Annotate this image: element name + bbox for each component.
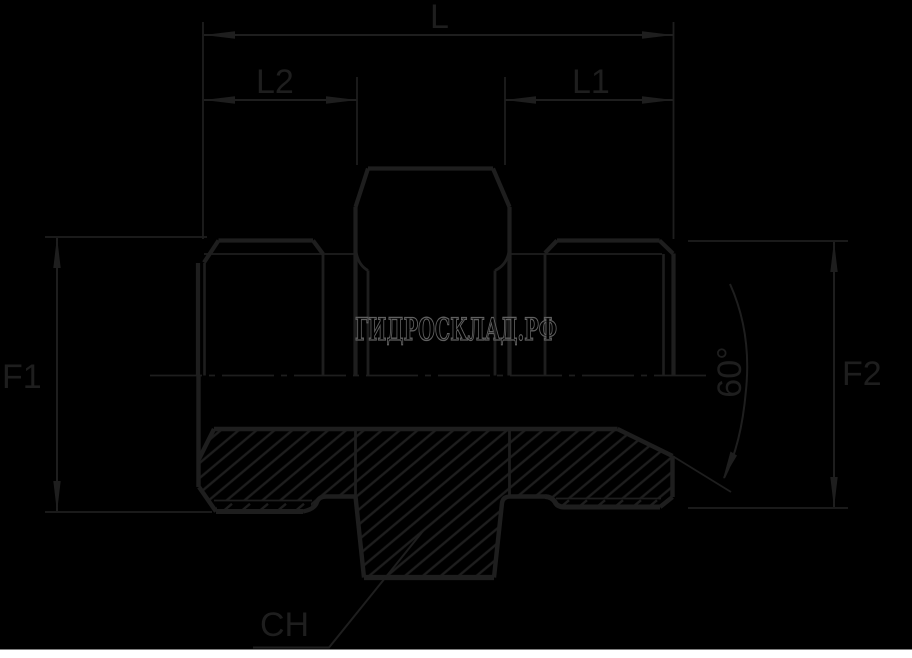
watermark: ГИДРОСКЛАД.РФ	[355, 312, 557, 348]
dimension-label-L: L	[430, 0, 449, 36]
bottom-white-strip	[0, 650, 912, 658]
dimension-label-F2: F2	[842, 355, 882, 393]
dimension-label-L2: L2	[256, 63, 294, 101]
adapter-section-drawing: L L2 L1 F1 F2 6	[0, 0, 912, 658]
hex-size-label: CH	[260, 606, 309, 644]
dimension-label-F1: F1	[2, 358, 42, 396]
technical-drawing-image: L L2 L1 F1 F2 6	[0, 0, 912, 658]
cone-angle-label: 60°	[711, 346, 749, 397]
dimension-label-L1: L1	[572, 63, 610, 101]
